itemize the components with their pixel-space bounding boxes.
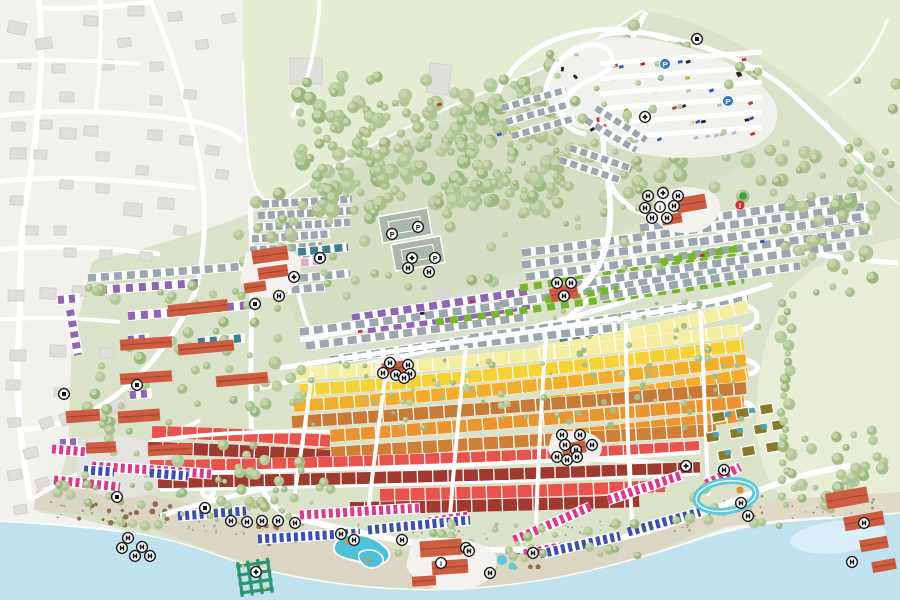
svg-text:P: P: [433, 255, 438, 262]
svg-text:i: i: [739, 202, 741, 209]
svg-text:P: P: [725, 97, 731, 106]
svg-text:P: P: [662, 60, 668, 69]
svg-text:P: P: [390, 231, 395, 238]
svg-text:i: i: [659, 204, 661, 211]
svg-text:P: P: [416, 224, 421, 231]
svg-text:i: i: [440, 560, 442, 567]
